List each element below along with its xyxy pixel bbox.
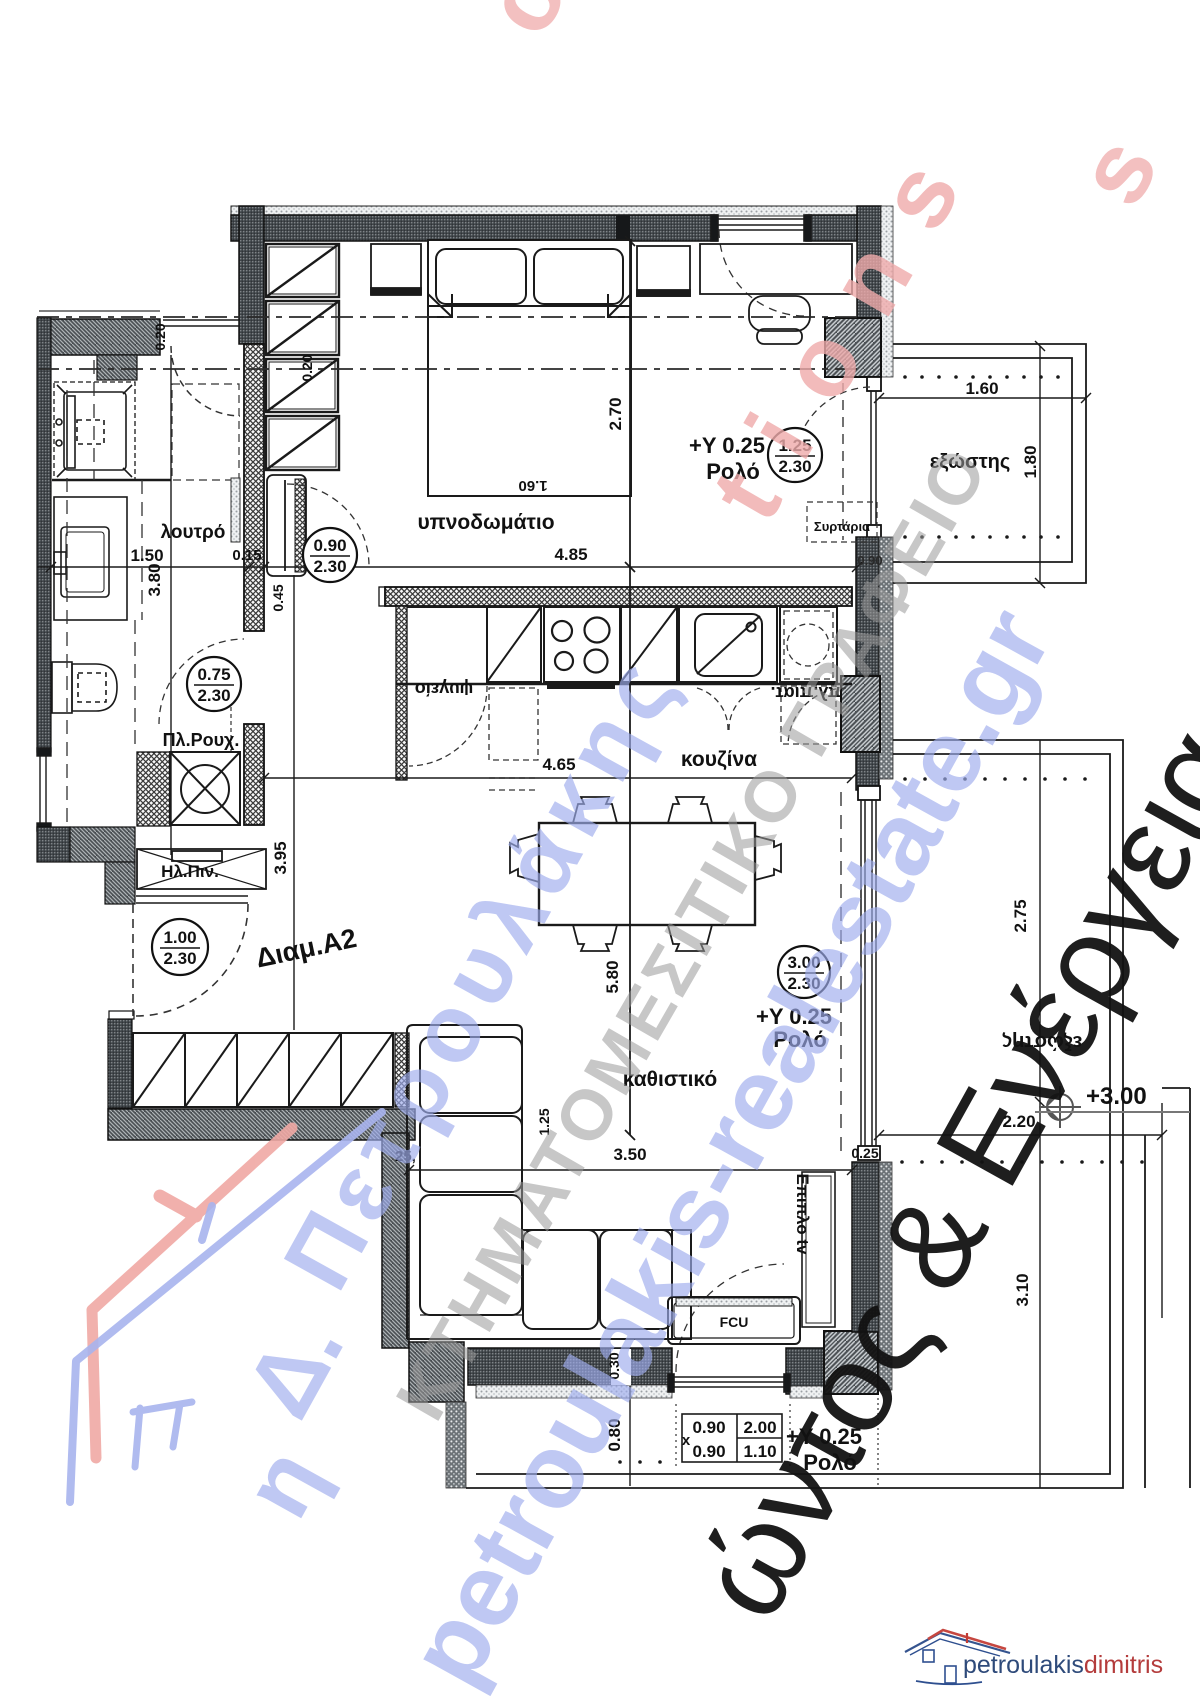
svg-text:λουτρό: λουτρό [161, 522, 226, 543]
svg-text:ψυγείο: ψυγείο [415, 679, 474, 699]
svg-text:0.20: 0.20 [299, 354, 315, 381]
svg-text:1.60: 1.60 [518, 477, 547, 494]
svg-text:0.45: 0.45 [270, 584, 286, 611]
svg-text:petroulakisdimitris: petroulakisdimitris [963, 1651, 1163, 1679]
svg-text:0.75: 0.75 [197, 665, 230, 684]
svg-text:1.00: 1.00 [163, 928, 196, 947]
svg-text:3.95: 3.95 [271, 841, 290, 874]
svg-text:x: x [682, 1432, 691, 1449]
svg-text:1.60: 1.60 [965, 379, 998, 398]
svg-text:2.30: 2.30 [197, 686, 230, 705]
svg-text:2.70: 2.70 [606, 397, 625, 430]
svg-text:4.85: 4.85 [554, 545, 587, 564]
svg-text:υπνοδωμάτιο: υπνοδωμάτιο [417, 511, 554, 534]
svg-text:1.80: 1.80 [1021, 445, 1040, 478]
svg-text:FCU: FCU [720, 1314, 749, 1330]
svg-text:0.25: 0.25 [851, 1145, 878, 1161]
svg-text:3.50: 3.50 [613, 1145, 646, 1164]
svg-text:0.90: 0.90 [692, 1418, 725, 1437]
svg-text:0.15: 0.15 [232, 547, 261, 564]
svg-text:Συρτάρια: Συρτάρια [814, 519, 870, 534]
svg-text:2.30: 2.30 [163, 949, 196, 968]
svg-text:0.20: 0.20 [152, 323, 168, 350]
svg-text:0.90: 0.90 [692, 1442, 725, 1461]
svg-text:Πλ.Ρουχ.: Πλ.Ρουχ. [163, 730, 240, 750]
svg-text:1.50: 1.50 [130, 546, 163, 565]
svg-text:Επιπλο tv: Επιπλο tv [793, 1174, 812, 1255]
svg-text:3.80: 3.80 [145, 563, 164, 596]
svg-text:0.90: 0.90 [313, 536, 346, 555]
svg-text:Ηλ.Πιν.: Ηλ.Πιν. [161, 862, 219, 881]
svg-text:2.30: 2.30 [313, 557, 346, 576]
svg-text:3.10: 3.10 [1013, 1273, 1032, 1306]
